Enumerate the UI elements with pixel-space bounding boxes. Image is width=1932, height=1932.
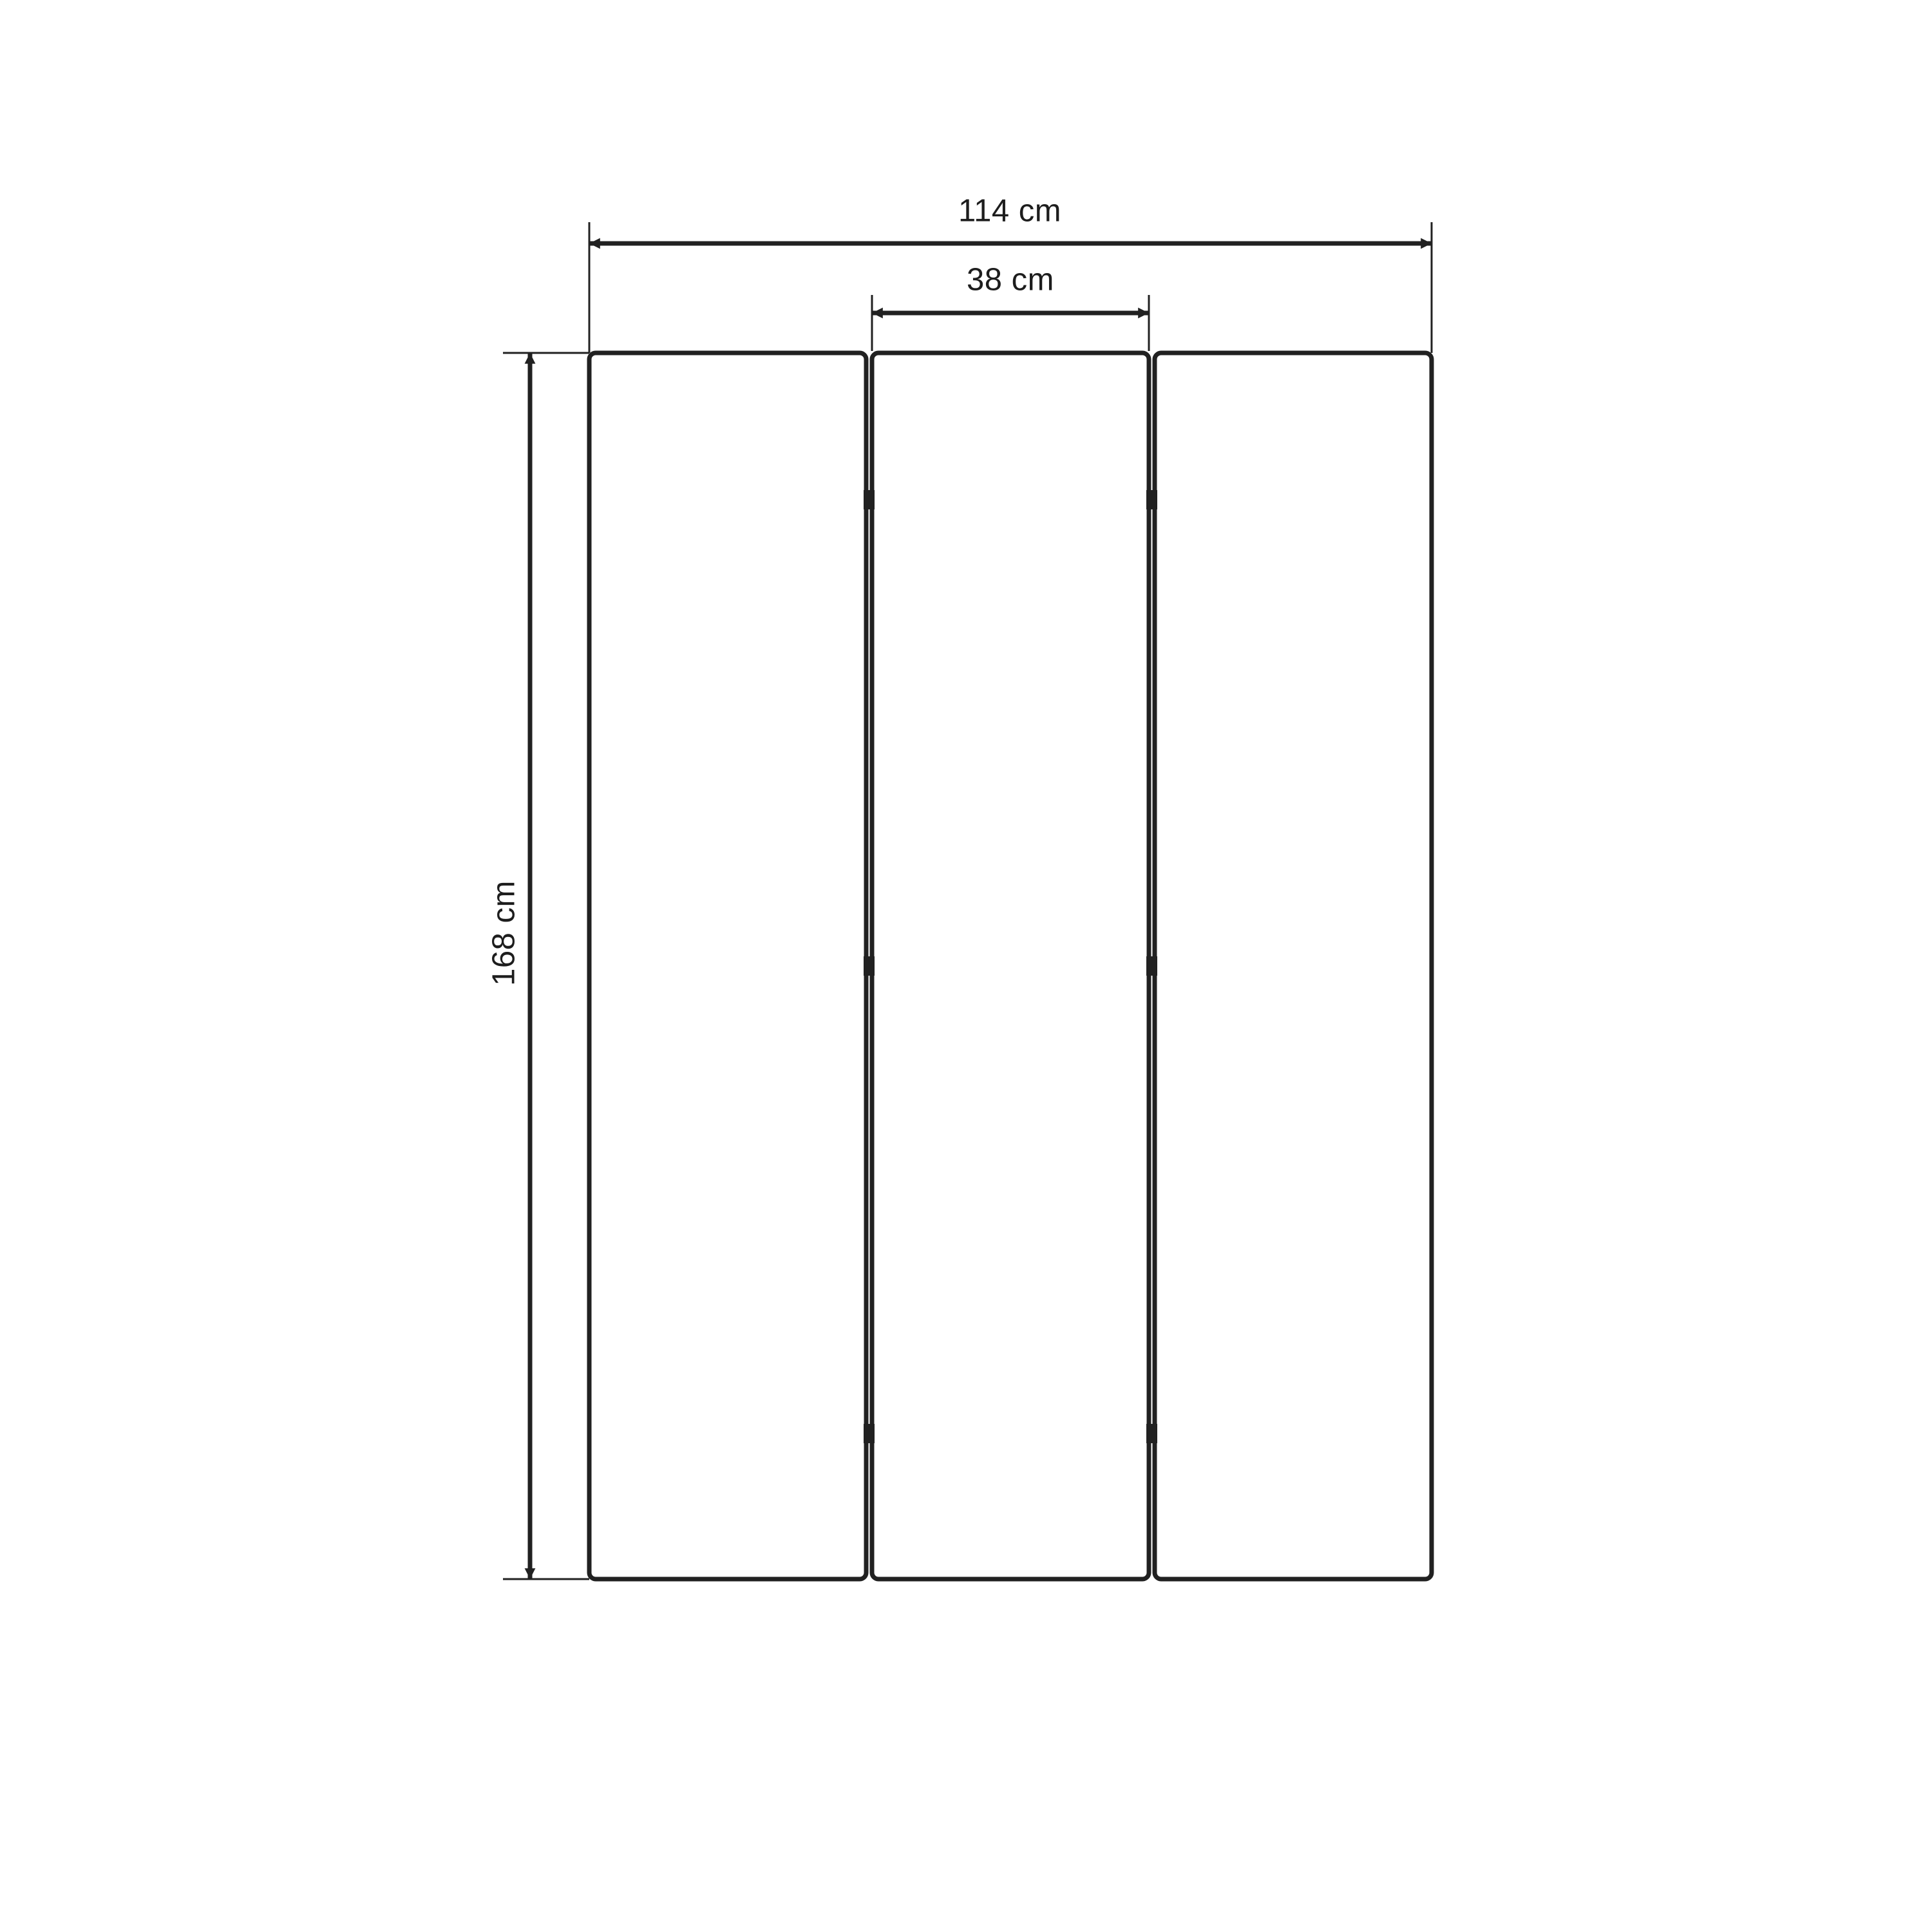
panel-width-label: 38 cm — [967, 265, 1054, 296]
hinge-right-middle — [1146, 956, 1157, 976]
hinge-left-middle — [864, 956, 875, 976]
dimension-diagram-page: 114 cm 38 cm 168 cm — [0, 0, 1932, 1932]
panel-right — [1155, 353, 1432, 1579]
hinge-right-top — [1146, 490, 1157, 509]
hinge-right-bottom — [1146, 1424, 1157, 1443]
height-label: 168 cm — [489, 880, 520, 986]
panel-left — [589, 353, 866, 1579]
hinge-left-bottom — [864, 1424, 875, 1443]
folding-screen-diagram — [0, 0, 1932, 1932]
hinge-left-top — [864, 490, 875, 509]
total-width-label: 114 cm — [958, 196, 1061, 227]
panel-middle — [872, 353, 1149, 1579]
